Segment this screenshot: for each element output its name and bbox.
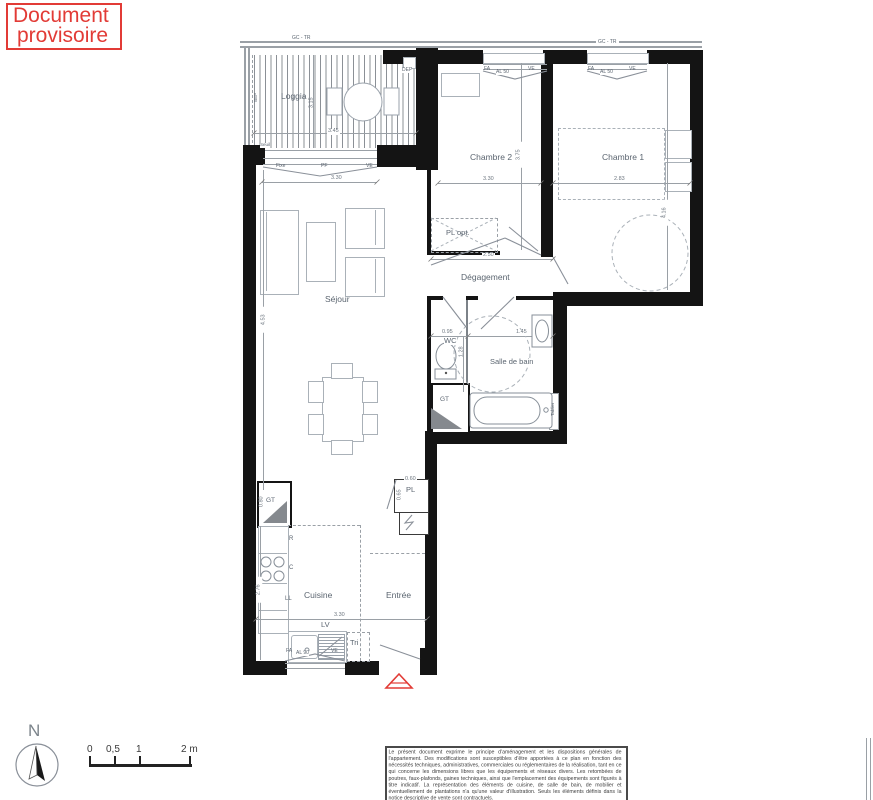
bed-dashed: [558, 128, 665, 200]
wall-segment: [345, 661, 379, 675]
provisional-stamp: Document provisoire: [6, 3, 122, 50]
dim-gt-height: 0.80: [259, 489, 265, 515]
dim-wc-height: 1.28: [459, 339, 465, 365]
label-lave-linge: LL: [285, 596, 292, 602]
dim-cuisine-height: 2.76: [256, 577, 262, 603]
window-band: [483, 64, 547, 65]
dim-line: [553, 183, 690, 184]
guardrail-line-left: [248, 48, 250, 148]
dim-line: [256, 619, 427, 620]
chair: [331, 363, 353, 379]
room-label-salle-de-bain: Salle de bain: [490, 358, 533, 366]
sofa-backrest-line: [266, 212, 267, 291]
label-seuil: Seuil: [260, 143, 270, 148]
wall-segment: [243, 661, 287, 675]
dim-degagement-width: 2.50: [482, 253, 495, 259]
wall-segment: [416, 48, 438, 170]
window-label-pf: PF: [321, 164, 327, 169]
label-garde-corps: GC - TR: [596, 40, 619, 45]
window-sill-chambre2: [483, 53, 545, 64]
wall-segment: [420, 648, 437, 675]
label-bep: BEP: [254, 85, 259, 109]
scale-bar: [90, 764, 192, 767]
window-label-fa: FA: [484, 67, 490, 72]
dim-line: [262, 182, 377, 183]
guardrail-line: [240, 41, 702, 43]
scale-tick: [114, 756, 116, 767]
dim-cuisine-width: 3.30: [333, 613, 346, 619]
room-label-cuisine: Cuisine: [304, 591, 332, 600]
dim-chambre2-height: 3.75: [516, 142, 522, 168]
window-band-cuisine: [285, 668, 345, 669]
kitchen-zone-dashed: [288, 525, 360, 526]
label-dep: DEP: [402, 68, 412, 73]
scale-label-05: 0,5: [106, 745, 120, 755]
armchair-line: [375, 259, 376, 293]
label-pl-opt: PL opt.: [446, 229, 470, 237]
chair: [308, 414, 324, 435]
counter-divider: [258, 583, 287, 584]
dining-table: [322, 377, 364, 442]
entree-zone-dashed: [370, 553, 425, 554]
chambre2-furniture: [441, 73, 480, 97]
counter-divider: [258, 610, 287, 611]
loggia-threshold-line: [256, 150, 380, 151]
window-label-al50: AL 50: [600, 70, 613, 75]
floor-plan-sheet: Document provisoire: [0, 0, 873, 800]
window-band: [587, 64, 647, 65]
stamp-line1: Document: [8, 6, 120, 26]
gt-duct-bathroom: [431, 383, 470, 434]
room-label-wc: WC: [444, 337, 457, 345]
wall-segment: [553, 292, 703, 306]
dim-sejour-height: 4.53: [261, 307, 267, 333]
dim-pl-width: 0.60: [404, 477, 417, 483]
window-band-cuisine: [285, 663, 345, 664]
window-band: [587, 69, 647, 70]
window-label-ve: VE: [528, 67, 535, 72]
wall-segment: [543, 50, 587, 64]
scale-tick: [139, 756, 141, 767]
dim-line: [431, 259, 553, 260]
dim-line-v: [667, 63, 668, 290]
window-sill-chambre1: [587, 53, 649, 64]
label-gt-living: GT: [266, 498, 275, 505]
wall-segment: [425, 431, 437, 648]
room-label-chambre1: Chambre 1: [602, 153, 644, 162]
label-cuisson: C: [289, 565, 293, 571]
wall-segment: [383, 50, 483, 64]
room-label-chambre2: Chambre 2: [470, 153, 512, 162]
chair: [331, 440, 353, 455]
drainboard: [318, 634, 345, 660]
scale-label-2m: 2 m: [181, 745, 198, 755]
dim-loggia-width: 3.45: [327, 129, 340, 135]
label-refrigerateur: R: [289, 536, 293, 542]
armchair-line: [375, 210, 376, 245]
chair: [308, 381, 324, 403]
window-label-ve: VE: [366, 164, 373, 169]
label-tablier: Tablier: [551, 397, 556, 421]
window-band-sejour: [263, 158, 377, 159]
wall-segment: [541, 63, 553, 257]
dim-sdb-width: 1.45: [515, 330, 528, 336]
guardrail-line: [240, 46, 702, 48]
dim-chambre2-width: 3.30: [482, 177, 495, 183]
north-compass-icon: [16, 744, 58, 786]
wall-segment: [377, 145, 421, 167]
disclaimer-text: Le présent document exprime le principe …: [387, 748, 623, 800]
window-label-ve: VE: [331, 649, 338, 654]
kitchen-zone-dashed: [360, 525, 361, 661]
chair: [362, 381, 378, 403]
dim-chambre1-height: 4.16: [662, 200, 668, 226]
guardrail-line-left: [244, 48, 246, 148]
window-label-fa: FA: [588, 67, 594, 72]
entrance-arrow-icon: [386, 674, 412, 688]
wall-segment: [243, 145, 256, 675]
disclaimer-box: Le présent document exprime le principe …: [385, 746, 628, 800]
scale-tick: [189, 756, 191, 767]
dim-loggia-height: 3.15: [309, 90, 315, 116]
scale-tick: [89, 756, 91, 767]
wc-bathroom-divider: [466, 300, 468, 396]
nightstand: [665, 130, 692, 159]
dim-chambre1-width: 2.83: [613, 177, 626, 183]
window-label-ve: VE: [629, 67, 636, 72]
armchair: [345, 208, 385, 249]
nightstand: [665, 162, 692, 192]
label-lv: LV: [321, 621, 330, 629]
label-garde-corps: GC - TR: [290, 36, 313, 41]
scale-label-0: 0: [87, 745, 93, 755]
wall-segment-thin: [427, 296, 443, 300]
scale-label-1: 1: [136, 745, 142, 755]
dim-line: [438, 183, 541, 184]
label-pl: PL: [406, 486, 415, 494]
room-label-loggia: Loggia: [281, 92, 307, 101]
window-label-fixe: Fixe: [276, 164, 285, 169]
dim-sejour-window: 3.30: [330, 176, 343, 182]
counter-divider: [258, 553, 287, 554]
wall-segment: [243, 145, 265, 165]
sheet-edge-line: [866, 738, 867, 800]
window-label-al90: AL 90: [296, 651, 309, 656]
wall-segment-thin: [516, 296, 553, 300]
window-label-al50: AL 50: [496, 70, 509, 75]
room-label-sejour: Séjour: [325, 295, 350, 304]
label-gt-bathroom: GT: [440, 397, 449, 404]
window-band: [483, 69, 547, 70]
dim-wc-width: 0.95: [441, 330, 454, 336]
water-heater-box: [399, 512, 429, 535]
label-tri: Tri: [350, 639, 358, 647]
dim-pl-height: 0.65: [397, 482, 403, 508]
north-label: N: [28, 722, 40, 739]
sheet-edge-line: [870, 738, 871, 800]
chair: [362, 414, 378, 435]
kitchen-counter: [258, 526, 289, 634]
room-label-entree: Entrée: [386, 591, 411, 600]
room-label-degagement: Dégagement: [461, 273, 510, 282]
armchair: [345, 257, 385, 297]
stamp-line2: provisoire: [8, 26, 120, 46]
coffee-table: [306, 222, 336, 282]
dim-ticks: [252, 131, 693, 622]
tri-bin-box: [347, 632, 370, 662]
window-label-fa: FA: [286, 649, 292, 654]
wall-segment-thin: [466, 296, 478, 300]
